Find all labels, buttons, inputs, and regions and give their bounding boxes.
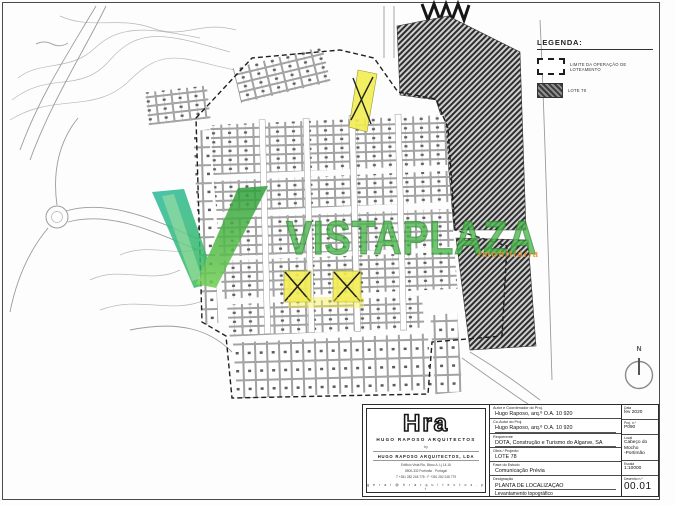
- field-row: Designação PLANTA DE LOCALIZAÇÃO Levanta…: [490, 476, 621, 496]
- north-arrow-icon: [618, 354, 660, 394]
- project-fields: Autor e Coordenador do Proj. Hugo Raposo…: [490, 405, 621, 496]
- architect-logo-cell: Hra HUGO RAPOSO ARQUITECTOS by HUGO RAPO…: [363, 405, 490, 496]
- meta-row: Desenho n.º 00.01: [622, 476, 658, 496]
- field-label: Co-Autor do Proj.: [493, 420, 618, 425]
- roundabout-inner: [52, 212, 63, 223]
- meta-row: Proj. n.º P090: [622, 420, 658, 435]
- field-value-2: Levantamento topográfico: [495, 491, 616, 496]
- address-line-2: 8500-332 Portimão · Portugal: [367, 469, 485, 473]
- legend-item-label: LOTE 78: [568, 88, 586, 93]
- company-name: HUGO RAPOSO ARQUITECTOS, LDA: [373, 451, 479, 461]
- meta-value: 1:10000: [624, 466, 656, 472]
- field-row: Obra / Projecto LOTE 78: [490, 448, 621, 462]
- byline: by: [367, 445, 485, 449]
- field-label: Fase do Estudo: [493, 463, 618, 468]
- hatched-lot-swatch: [537, 83, 563, 98]
- meta-value: P090: [624, 425, 656, 431]
- field-label: Requerente: [493, 435, 618, 440]
- meta-value: Cabeço do Mocho: [624, 440, 656, 452]
- hra-logo: Hra: [367, 412, 485, 436]
- meta-value-2: -Portimão: [624, 451, 656, 457]
- meta-row: Escala 1:10000: [622, 461, 658, 476]
- field-row: Fase do Estudo Comunicação Prévia: [490, 462, 621, 476]
- field-label: Designação: [493, 477, 618, 482]
- field-value: PLANTA DE LOCALIZAÇÃO: [495, 483, 616, 491]
- meta-row: Local Cabeço do Mocho -Portimão: [622, 435, 658, 461]
- drawing-number: 00.01: [624, 481, 656, 493]
- field-row: Co-Autor do Proj. Hugo Raposo, arq.º O.A…: [490, 419, 621, 433]
- field-row: Requerente DOTA, Construção e Turismo do…: [490, 434, 621, 448]
- field-label: Obra / Projecto: [493, 449, 618, 454]
- architect-logo-box: Hra HUGO RAPOSO ARQUITECTOS by HUGO RAPO…: [366, 408, 486, 493]
- title-block: Hra HUGO RAPOSO ARQUITECTOS by HUGO RAPO…: [362, 404, 659, 497]
- meta-value: fev 2020: [624, 410, 656, 416]
- legend: LEGENDA: LIMITE DA OPERAÇÃO DE LOTEAMENT…: [537, 38, 653, 106]
- legend-title: LEGENDA:: [537, 38, 653, 50]
- field-value: Comunicação Prévia: [495, 468, 616, 476]
- phone-line: T +351 282 248 778 · F +351 282 248 779: [367, 475, 485, 479]
- drawing-sheet: VISTAPLAZA imobiliária LEGENDA: LIMITE D…: [0, 0, 675, 506]
- pencil-note: [36, 42, 68, 46]
- email-line: g e r a l @ h r a r q u i t e c t o s . …: [367, 483, 485, 491]
- field-value: LOTE 78: [495, 454, 616, 462]
- field-value: DOTA, Construção e Turismo do Algarve, S…: [495, 440, 616, 448]
- field-label: Autor e Coordenador do Proj.: [493, 406, 618, 411]
- field-value: Hugo Raposo, arq.º O.A. 10 920: [495, 411, 616, 419]
- north-label: N: [618, 346, 660, 354]
- field-value: Hugo Raposo, arq.º O.A. 10 920: [495, 425, 616, 433]
- legend-item-label: LIMITE DA OPERAÇÃO DE LOTEAMENTO: [570, 62, 653, 72]
- legend-item: LIMITE DA OPERAÇÃO DE LOTEAMENTO: [537, 58, 653, 75]
- legend-item: LOTE 78: [537, 83, 653, 98]
- meta-row: Data fev 2020: [622, 405, 658, 420]
- address-line-1: Edifício Vista Rio, Bloco A, Lj 14-16: [367, 463, 485, 467]
- field-row: Autor e Coordenador do Proj. Hugo Raposo…: [490, 405, 621, 419]
- north-arrow: N: [618, 346, 660, 396]
- roundabout: [46, 206, 68, 228]
- meta-fields: Data fev 2020 Proj. n.º P090 Local Cabeç…: [621, 405, 658, 496]
- firm-name: HUGO RAPOSO ARQUITECTOS: [367, 437, 485, 442]
- dashed-boundary-swatch: [537, 58, 565, 75]
